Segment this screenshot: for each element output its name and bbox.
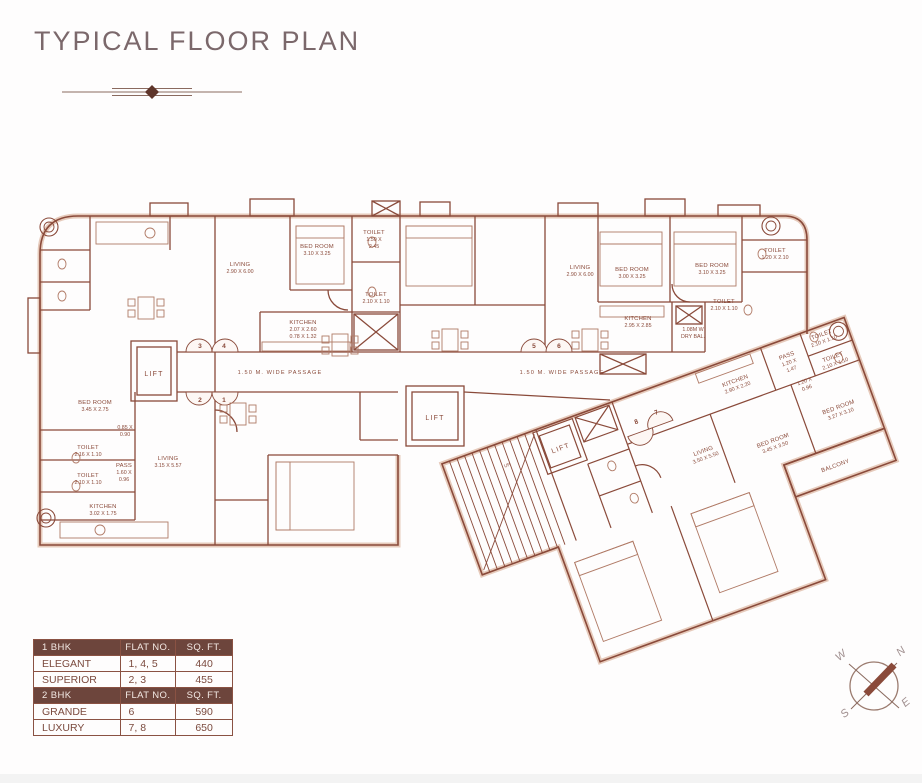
- room-flat6-toilet2-dim: 2.10 X 1.10: [710, 306, 737, 312]
- compass-w: W: [833, 647, 850, 664]
- legend-flats-luxury: 7, 8: [120, 720, 176, 736]
- room-flat4-toilet1: TOILET: [363, 230, 385, 236]
- room-flat4-bedroom: BED ROOM: [300, 244, 334, 250]
- room-flat4-kitchen: KITCHEN: [289, 320, 316, 326]
- room-flat4-toilet1-dim: 1.50 X: [366, 237, 382, 243]
- room-flat6-living: LIVING: [570, 265, 591, 271]
- room-flat4-kitchen-dim2: 0.78 X 1.32: [289, 334, 316, 340]
- legend-type-luxury: LUXURY: [34, 720, 121, 736]
- room-flat4-living: LIVING: [230, 262, 251, 268]
- room-flat2-dim: 0.85 X: [117, 425, 133, 431]
- room-flat6-bedroom2-dim: 3.10 X 3.25: [698, 270, 725, 276]
- door-number-1: 1: [222, 397, 226, 404]
- legend-row-luxury: LUXURY 7, 8 650: [34, 720, 233, 736]
- furniture: [58, 222, 766, 538]
- legend-sqft-header-2: SQ. FT.: [176, 688, 233, 704]
- legend-flats-grande: 6: [120, 704, 176, 720]
- room-flat2-living: LIVING: [158, 456, 179, 462]
- bottom-strip: [0, 774, 922, 783]
- legend-sqft-elegant: 440: [176, 656, 233, 672]
- room-flat2-toilet1-dim: 2.16 X 1.10: [74, 452, 101, 458]
- compass-rose-icon: N W E S: [828, 638, 922, 734]
- room-flat2-dim2: 0.90: [120, 432, 130, 438]
- legend-header-2bhk: 2 BHK FLAT NO. SQ. FT.: [34, 688, 233, 704]
- door-number-3: 3: [198, 343, 202, 350]
- room-flat2-living-dim: 3.15 X 5.57: [154, 463, 181, 469]
- door-number-6: 6: [557, 343, 561, 350]
- door-number-4: 4: [222, 343, 226, 350]
- room-flat6-bedroom1-dim: 3.00 X 3.25: [618, 274, 645, 280]
- room-flat6-living-dim: 2.90 X 6.00: [566, 272, 593, 278]
- legend-sqft-superior: 455: [176, 672, 233, 688]
- outer-walls: [40, 216, 807, 545]
- legend-type-grande: GRANDE: [34, 704, 121, 720]
- room-flat6-kitchen: KITCHEN: [624, 316, 651, 322]
- passage-label-right: 1.50 M. WIDE PASSAGE: [520, 370, 605, 376]
- room-flat6-bedroom2: BED ROOM: [695, 263, 729, 269]
- compass-n: N: [894, 645, 908, 659]
- legend-flatno-header: FLAT NO.: [120, 640, 176, 656]
- door-number-8: 8: [634, 418, 640, 426]
- legend-row-superior: SUPERIOR 2, 3 455: [34, 672, 233, 688]
- room-flat6-toilet1-dim: 1.20 X 2.10: [761, 255, 788, 261]
- room-flat6-toilet1: TOILET: [764, 248, 786, 254]
- room-flat2-kitchen-dim: 3.02 X 1.75: [89, 511, 116, 517]
- legend-sqft-grande: 590: [176, 704, 233, 720]
- room-dry-balcony-dim: DRY BAL.: [681, 334, 705, 340]
- legend-row-elegant: ELEGANT 1, 4, 5 440: [34, 656, 233, 672]
- compass-s: S: [838, 706, 852, 720]
- legend-sqft-luxury: 650: [176, 720, 233, 736]
- legend-1bhk-label: 1 BHK: [34, 640, 121, 656]
- door-number-5: 5: [532, 343, 536, 350]
- flat-legend-table: 1 BHK FLAT NO. SQ. FT. ELEGANT 1, 4, 5 4…: [33, 639, 233, 736]
- room-flat2-bedroom: BED ROOM: [78, 400, 112, 406]
- wall-fill-layer: [40, 216, 922, 689]
- room-flat2-pass-dim2: 0.96: [119, 477, 129, 483]
- compass-needle: [866, 665, 894, 694]
- room-flat2-kitchen: KITCHEN: [89, 504, 116, 510]
- legend-flats-elegant: 1, 4, 5: [120, 656, 176, 672]
- compass-e: E: [899, 695, 913, 709]
- room-flat2-pass: PASS: [116, 463, 132, 469]
- room-flat4-toilet2-dim: 2.10 X 1.10: [362, 299, 389, 305]
- legend-row-grande: GRANDE 6 590: [34, 704, 233, 720]
- room-flat6-kitchen-dim: 2.95 X 2.85: [624, 323, 651, 329]
- room-flat6-bedroom1: BED ROOM: [615, 267, 649, 273]
- room-flat4-toilet1-dim2: 2.45: [369, 244, 379, 250]
- passage-label-left: 1.50 M. WIDE PASSAGE: [238, 370, 323, 376]
- wing-lift-label: LIFT: [551, 442, 571, 455]
- legend-type-superior: SUPERIOR: [34, 672, 121, 688]
- legend-flats-superior: 2, 3: [120, 672, 176, 688]
- room-flat4-toilet2: TOILET: [365, 292, 387, 298]
- left-lift-label: LIFT: [144, 371, 163, 378]
- legend-2bhk-label: 2 BHK: [34, 688, 121, 704]
- legend-header-1bhk: 1 BHK FLAT NO. SQ. FT.: [34, 640, 233, 656]
- room-flat6-toilet2: TOILET: [713, 299, 735, 305]
- legend-flatno-header-2: FLAT NO.: [120, 688, 176, 704]
- room-flat4-living-dim: 2.90 X 6.00: [226, 269, 253, 275]
- room-flat2-pass-dim: 1.60 X: [116, 470, 132, 476]
- room-flat2-toilet1: TOILET: [77, 445, 99, 451]
- room-flat2-bedroom-dim: 3.45 X 2.75: [81, 407, 108, 413]
- door-number-2: 2: [198, 397, 202, 404]
- room-flat4-kitchen-dim: 2.07 X 2.60: [289, 327, 316, 333]
- mid-lift-label: LIFT: [425, 415, 444, 422]
- room-flat4-bedroom-dim: 3.10 X 3.25: [303, 251, 330, 257]
- room-flat2-toilet2: TOILET: [77, 473, 99, 479]
- room-dry-balcony: 1.08M W: [682, 327, 703, 333]
- room-wing-balcony: BALCONY: [821, 459, 851, 475]
- legend-sqft-header: SQ. FT.: [176, 640, 233, 656]
- room-flat2-toilet2-dim: 2.10 X 1.10: [74, 480, 101, 486]
- page: TYPICAL FLOOR PLAN: [0, 0, 922, 783]
- legend-type-elegant: ELEGANT: [34, 656, 121, 672]
